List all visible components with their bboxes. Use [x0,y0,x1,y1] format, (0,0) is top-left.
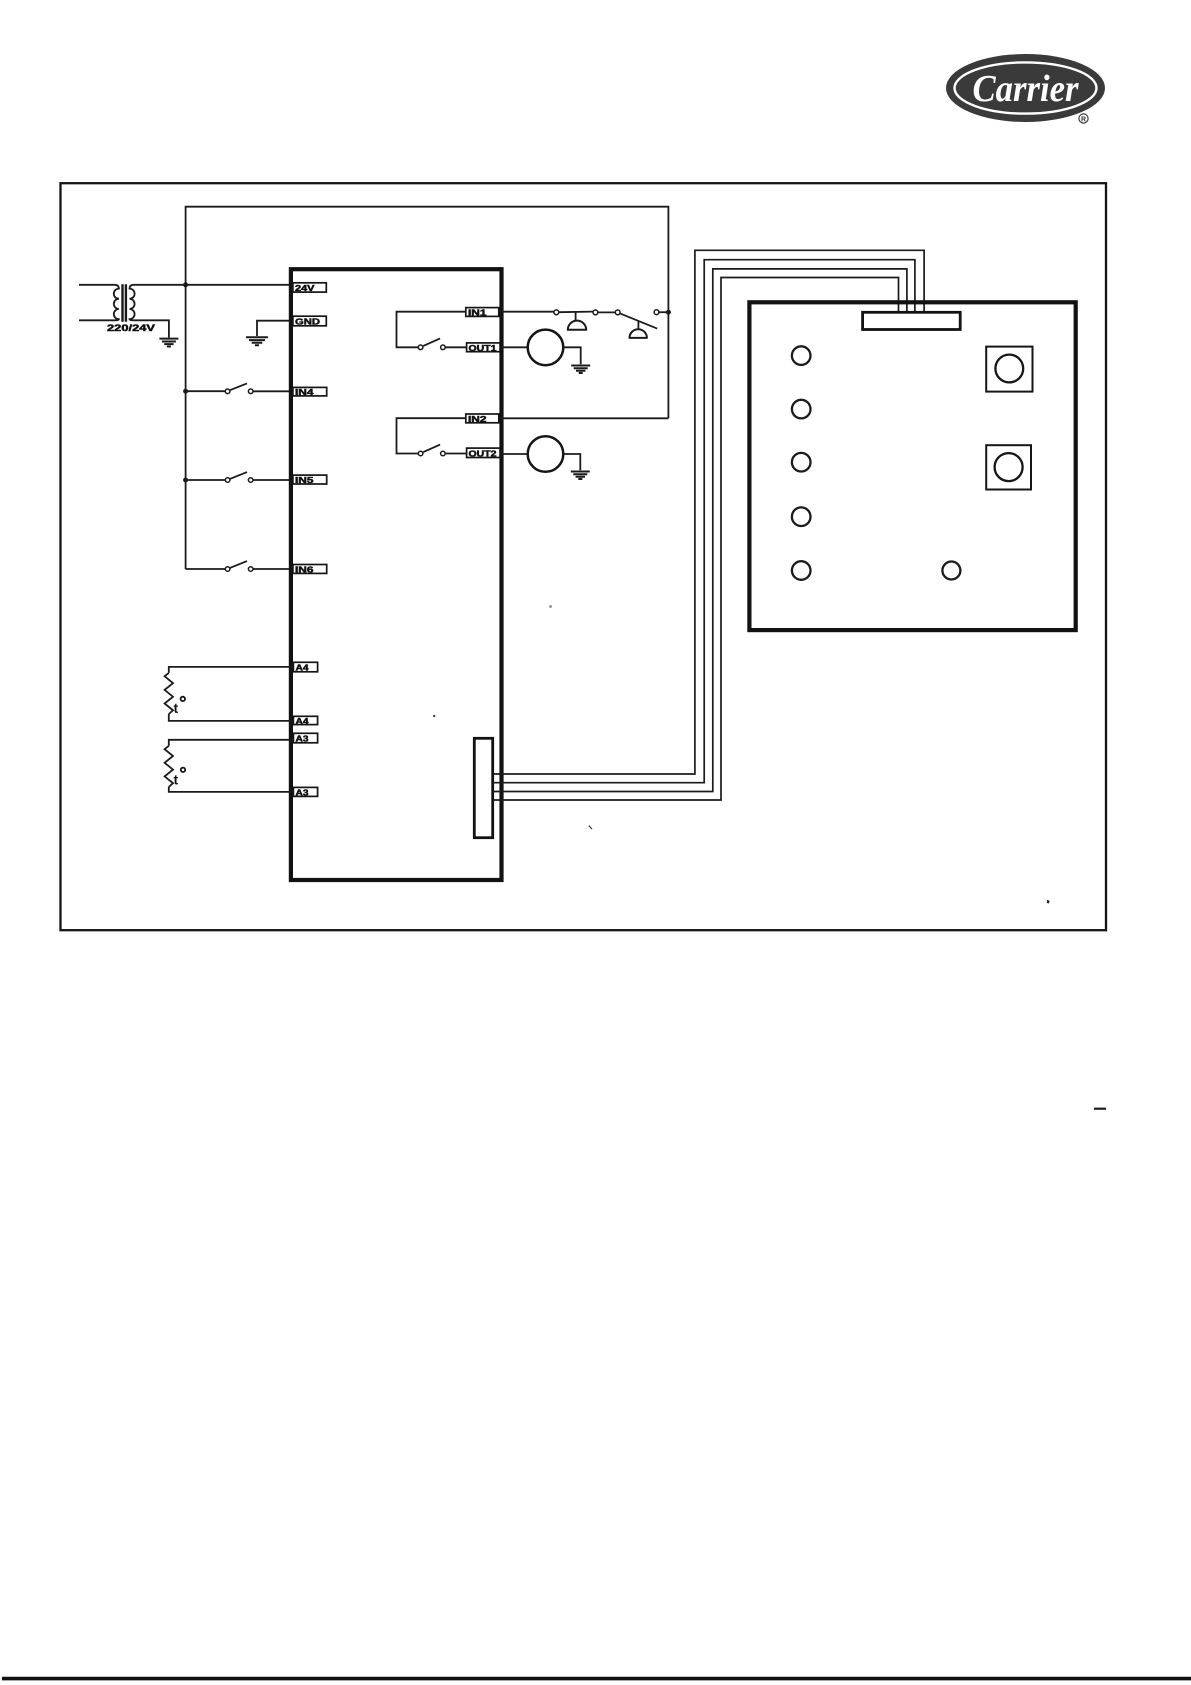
svg-text:A3: A3 [296,734,309,744]
svg-text:t: t [174,771,179,787]
svg-text:A4: A4 [296,716,309,726]
svg-text:IN6: IN6 [295,565,314,575]
svg-text:t: t [174,700,179,716]
svg-text:IN4: IN4 [295,387,314,397]
svg-text:R: R [1081,117,1086,124]
svg-text:IN1: IN1 [468,308,487,318]
svg-text:A3: A3 [296,788,309,798]
svg-text:A4: A4 [296,663,309,673]
svg-text:GND: GND [295,317,320,327]
svg-text:IN5: IN5 [295,475,314,485]
svg-text:24V: 24V [295,283,315,293]
svg-text:IN2: IN2 [468,414,487,424]
svg-text:OUT2: OUT2 [469,449,497,459]
svg-text:220/24V: 220/24V [107,323,156,334]
svg-text:Carrier: Carrier [973,68,1080,110]
svg-text:OUT1: OUT1 [469,343,497,353]
